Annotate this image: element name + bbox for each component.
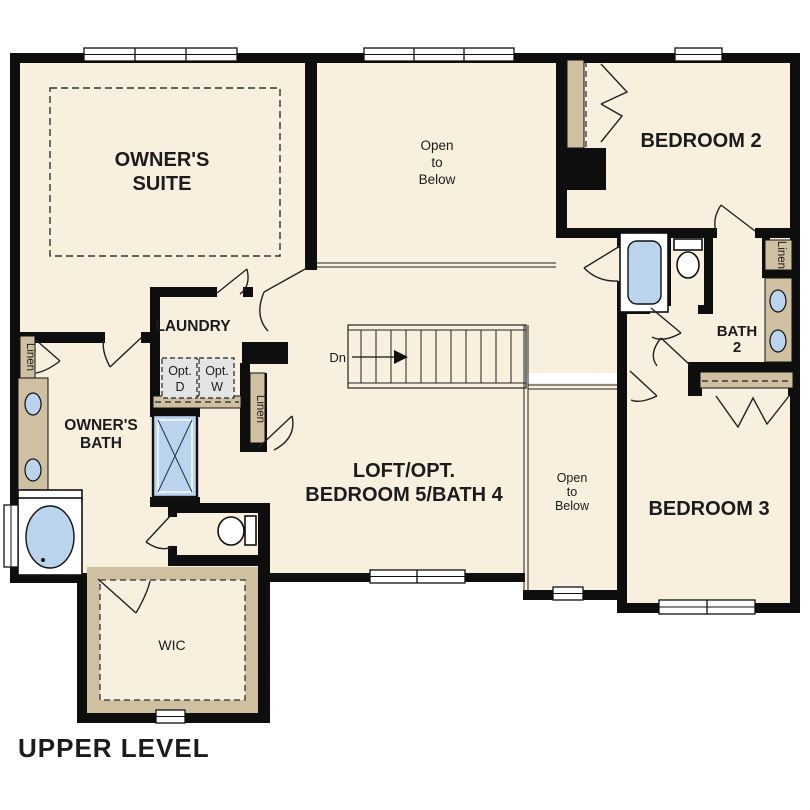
bath2-label-line2: 2 bbox=[733, 339, 741, 356]
wall-shower-south bbox=[150, 497, 200, 507]
linen-right-label: Linen bbox=[775, 241, 787, 269]
owners-bath-sink-2 bbox=[25, 459, 41, 481]
bedroom3-closet-shelf bbox=[700, 372, 793, 388]
floorplan-page: OWNER'S SUITE Open to Below BEDROOM 2 LA… bbox=[0, 0, 810, 810]
wall-bedroom3-left bbox=[617, 368, 627, 613]
wall-hall-chunk bbox=[242, 342, 288, 364]
wall-wic-right bbox=[258, 503, 270, 723]
wc-toilet-tank bbox=[245, 516, 256, 545]
wall-compartment-bottom-b bbox=[698, 305, 713, 314]
loft-label-line1: LOFT/OPT. bbox=[353, 460, 455, 482]
linen-center-label: Linen bbox=[254, 395, 266, 423]
wall-laundry-west bbox=[150, 287, 160, 409]
wall-wc-bottom bbox=[168, 555, 268, 566]
wall-bedroom2-south-stub bbox=[755, 228, 800, 238]
owners-bath-label-line1: OWNER'S bbox=[64, 417, 137, 434]
owners-bath-label-line2: BATH bbox=[80, 435, 122, 452]
loft-label-line2: BEDROOM 5/BATH 4 bbox=[305, 484, 503, 506]
bedroom3-label: BEDROOM 3 bbox=[648, 498, 769, 520]
wic-label: WIC bbox=[158, 637, 185, 653]
bath2-tub bbox=[628, 241, 661, 304]
wall-bath2-compartment-right bbox=[704, 228, 713, 314]
stairs-down-label: Dn bbox=[329, 350, 346, 365]
linen-left-label: Linen bbox=[24, 343, 36, 371]
bedroom2-label: BEDROOM 2 bbox=[640, 130, 761, 152]
bath2-label-line1: BATH bbox=[717, 323, 758, 340]
bath2-sink-2 bbox=[770, 330, 786, 352]
plan-title: UPPER LEVEL bbox=[18, 733, 210, 763]
wall-laundry-north-a bbox=[150, 287, 217, 297]
owners-tub-drain bbox=[41, 558, 45, 562]
opt-washer-line2: W bbox=[211, 380, 223, 394]
wc-toilet-bowl bbox=[218, 517, 244, 545]
floorplan-svg: OWNER'S SUITE Open to Below BEDROOM 2 LA… bbox=[0, 0, 810, 810]
open-below-main-line2: to bbox=[431, 155, 442, 170]
opt-dryer-line1: Opt. bbox=[168, 364, 192, 378]
wall-suite-right bbox=[305, 58, 317, 270]
open-below-main-line3: Below bbox=[419, 172, 456, 187]
open-below-small-line3: Below bbox=[555, 499, 590, 513]
owners-tub bbox=[26, 506, 74, 568]
opt-dryer-line2: D bbox=[175, 380, 184, 394]
open-below-small-line2: to bbox=[567, 485, 577, 499]
bedroom2-closet-shelf bbox=[567, 60, 584, 148]
owners-bath-sink-1 bbox=[25, 393, 41, 415]
wall-wic-left bbox=[77, 573, 87, 723]
owners-suite-label-line2: SUITE bbox=[133, 173, 192, 195]
opt-washer-line1: Opt. bbox=[205, 364, 229, 378]
bath2-toilet-bowl bbox=[677, 252, 699, 278]
wall-bedroom2-west-b bbox=[556, 190, 567, 238]
wall-bedroom2-west-a bbox=[556, 58, 567, 150]
open-below-main-line1: Open bbox=[420, 138, 453, 153]
bath2-sink-1 bbox=[770, 290, 786, 312]
laundry-label: LAUNDRY bbox=[155, 318, 231, 335]
open-below-small-line1: Open bbox=[557, 471, 588, 485]
wall-bath2-south bbox=[688, 362, 800, 372]
owners-suite-label-line1: OWNER'S bbox=[115, 149, 210, 171]
stairs bbox=[348, 325, 526, 388]
wall-bedroom2-closet-chunk bbox=[556, 148, 606, 190]
bath2-toilet-tank bbox=[674, 239, 702, 250]
